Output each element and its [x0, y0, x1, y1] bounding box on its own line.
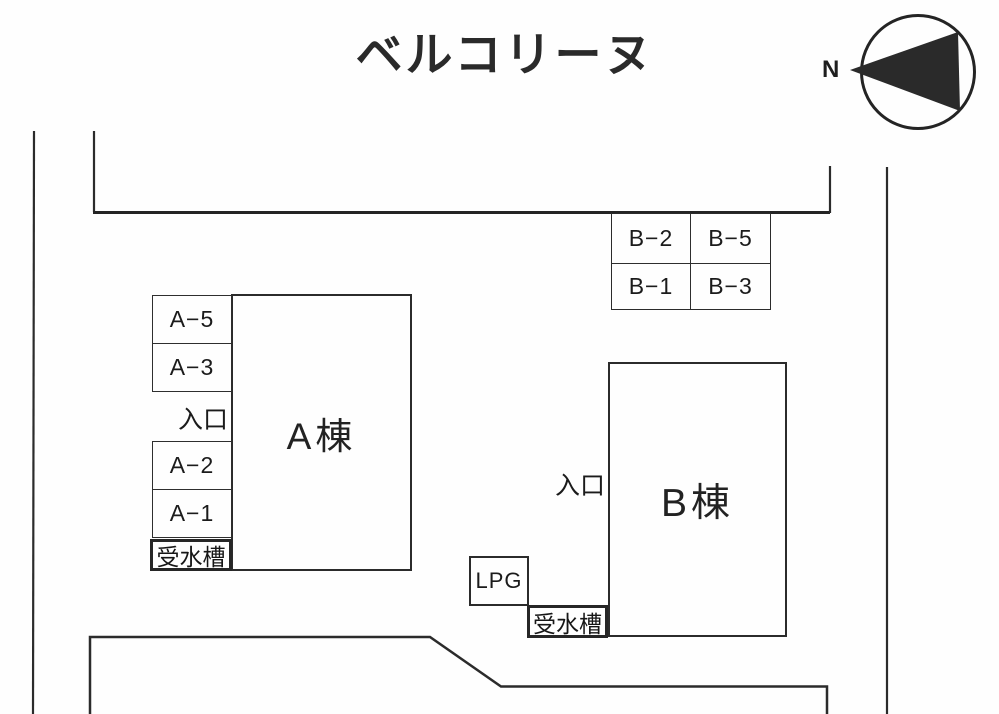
building-a: A棟: [231, 294, 412, 571]
parking-spot-a3-label: A−3: [170, 354, 215, 381]
water-tank-b: 受水槽: [527, 605, 608, 638]
parking-spot-a5: A−5: [152, 295, 232, 344]
water-tank-a: 受水槽: [150, 539, 232, 571]
parking-spot-b1: B−1: [612, 264, 691, 309]
lpg-label: LPG: [475, 568, 522, 594]
parking-spot-a1-label: A−1: [170, 500, 215, 527]
parking-spot-b3: B−3: [691, 264, 770, 309]
entrance-label-b: 入口: [536, 466, 605, 494]
building-b: B棟: [608, 362, 787, 637]
parking-spot-a2: A−2: [152, 441, 232, 490]
water-tank-a-label: 受水槽: [157, 538, 226, 572]
parking-spot-a3: A−3: [152, 343, 232, 392]
entrance-label-a: 入口: [150, 400, 228, 428]
parking-spot-a5-label: A−5: [170, 306, 215, 333]
building-a-label: A棟: [287, 406, 357, 460]
parking-spot-b2: B−2: [612, 214, 691, 264]
building-b-label: B棟: [661, 472, 734, 528]
lpg-box: LPG: [469, 556, 529, 606]
parking-grid-b: B−2 B−5 B−1 B−3: [611, 213, 771, 310]
parking-spot-b5: B−5: [691, 214, 770, 264]
parking-spot-a1: A−1: [152, 489, 232, 538]
water-tank-b-label: 受水槽: [533, 605, 602, 639]
road-lines: [0, 0, 999, 714]
site-plan: ベルコリーヌ N A棟 B棟 A−5 A−3 入口 A−2: [0, 0, 999, 714]
parking-spot-a2-label: A−2: [170, 452, 215, 479]
